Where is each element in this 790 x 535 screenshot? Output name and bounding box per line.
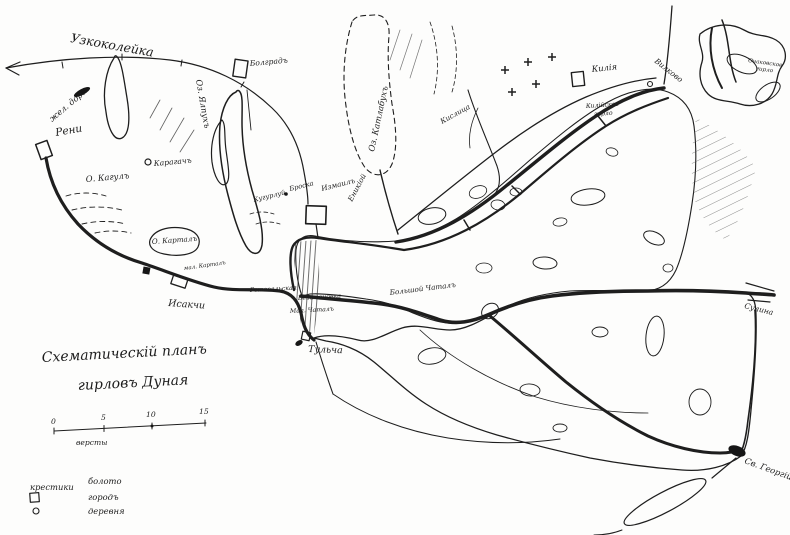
scale-tick-10: 10 bbox=[146, 410, 156, 419]
label-kiliya-branch-2: гирло bbox=[594, 110, 613, 118]
scale-tick-15: 15 bbox=[199, 407, 209, 416]
legend-town-meaning: городъ bbox=[88, 492, 119, 502]
scale-unit: версты bbox=[76, 438, 107, 447]
scale-tick-5: 5 bbox=[101, 413, 106, 422]
legend-marsh-meaning: болото bbox=[88, 476, 122, 486]
scale-tick-0: 0 bbox=[51, 417, 56, 426]
label-tulcha: Тульча bbox=[308, 344, 343, 356]
sketch-map-danube-mouths: Узкоколейка жел. дор. Рени Болградъ Кара… bbox=[0, 0, 790, 535]
legend-village-meaning: деревня bbox=[88, 506, 125, 516]
paper-background bbox=[0, 0, 790, 535]
landing-marker bbox=[142, 267, 150, 275]
legend-marsh-symbol-word: крестики bbox=[30, 482, 74, 492]
